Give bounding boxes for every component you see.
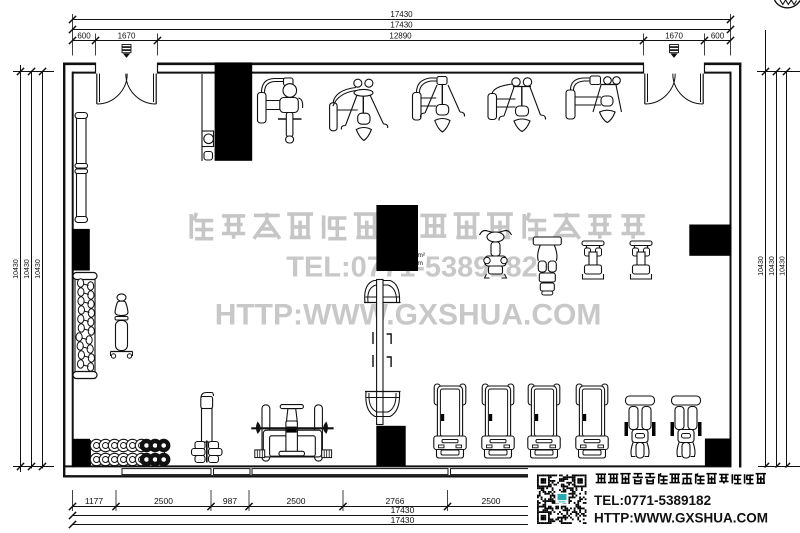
svg-text:m: m [418,260,423,267]
svg-text:987: 987 [223,496,237,506]
svg-text:10430: 10430 [24,259,31,279]
svg-text:10430: 10430 [769,256,776,276]
svg-text:1670: 1670 [118,31,136,40]
svg-text:10430: 10430 [13,259,20,279]
svg-text:10430: 10430 [35,259,42,279]
svg-text:2500: 2500 [287,496,306,506]
svg-text:2500: 2500 [154,496,173,506]
svg-text:TEL:0771-5389182: TEL:0771-5389182 [594,493,711,508]
svg-text:10430: 10430 [758,256,765,276]
svg-text:2500: 2500 [482,496,501,506]
svg-text:12890: 12890 [389,31,412,40]
svg-text:10430: 10430 [780,256,787,276]
svg-text:17430: 17430 [390,10,413,19]
svg-text:HTTP:WWW.GXSHUA.COM: HTTP:WWW.GXSHUA.COM [215,299,602,332]
svg-text:600: 600 [77,31,91,40]
svg-text:HTTP:WWW.GXSHUA.COM: HTTP:WWW.GXSHUA.COM [594,511,768,526]
svg-text:1670: 1670 [665,31,683,40]
svg-text:17430: 17430 [391,505,415,515]
svg-text:1177: 1177 [85,496,104,506]
svg-text:600: 600 [711,31,725,40]
svg-text:17430: 17430 [390,21,413,30]
svg-text:17430: 17430 [391,515,415,525]
svg-text:m²: m² [418,252,426,259]
